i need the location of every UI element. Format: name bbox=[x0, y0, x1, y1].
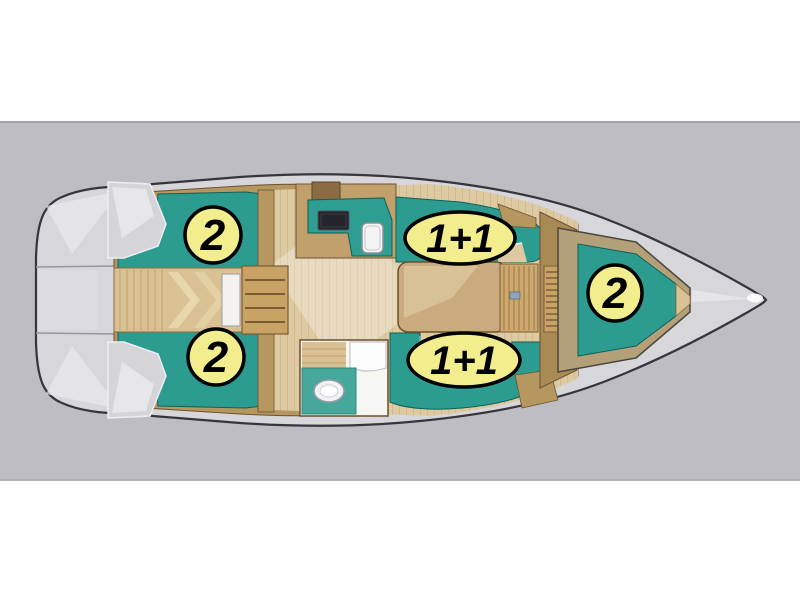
head-wood-patch bbox=[302, 342, 346, 368]
badge-forward-cabin: 2 bbox=[588, 265, 642, 321]
badge-forward-label: 2 bbox=[602, 269, 628, 318]
transom-line-upper bbox=[36, 266, 116, 267]
boat-layout-diagram: 2 2 1+1 1+1 2 bbox=[0, 0, 800, 601]
head-compartment bbox=[300, 340, 388, 416]
companionway-ladder bbox=[242, 266, 288, 334]
badge-aft-starboard-cabin: 2 bbox=[188, 329, 244, 385]
bow-highlight bbox=[747, 294, 763, 303]
gray-band-bottom-edge bbox=[0, 479, 800, 481]
aft-starboard-bulkhead bbox=[258, 330, 274, 412]
saloon-table bbox=[398, 262, 506, 332]
gray-band-top-edge bbox=[0, 121, 800, 123]
badge-aft-starboard-label: 2 bbox=[203, 333, 229, 382]
galley-hatch bbox=[312, 182, 340, 200]
galley bbox=[296, 182, 396, 258]
toilet-bowl bbox=[320, 385, 338, 397]
small-blue-item bbox=[510, 292, 520, 299]
badge-saloon-port-label: 1+1 bbox=[426, 217, 494, 261]
head-sink-seat bbox=[350, 342, 386, 371]
stern-facet-middle bbox=[38, 270, 98, 330]
badge-saloon-starboard-label: 1+1 bbox=[430, 339, 498, 383]
storage-slats bbox=[500, 264, 538, 332]
transom-line-lower bbox=[36, 333, 116, 334]
badge-saloon-port: 1+1 bbox=[405, 212, 515, 264]
aft-port-bulkhead bbox=[258, 190, 274, 272]
badge-aft-port-label: 2 bbox=[200, 211, 226, 260]
boat-floor-plan-canvas: 2 2 1+1 1+1 2 bbox=[0, 0, 800, 601]
badge-aft-port-cabin: 2 bbox=[185, 207, 241, 263]
companionway-door bbox=[222, 274, 240, 326]
companionway bbox=[222, 266, 288, 334]
badge-saloon-starboard: 1+1 bbox=[408, 333, 520, 387]
